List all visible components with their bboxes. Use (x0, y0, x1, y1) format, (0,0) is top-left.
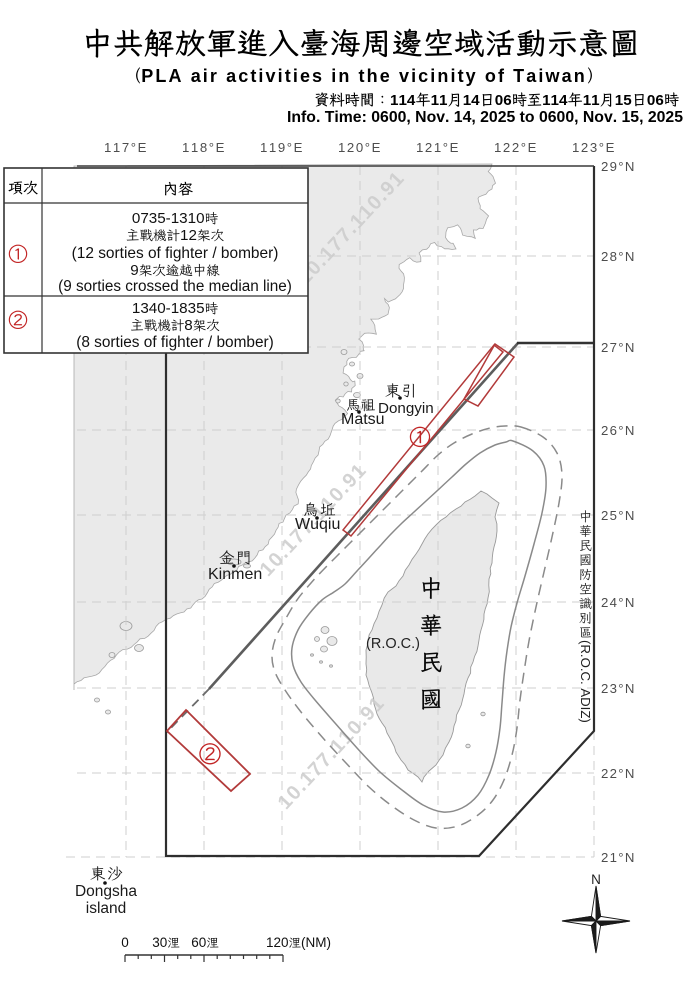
svg-text:11: 11 (583, 92, 600, 109)
svg-text:22°N: 22°N (601, 766, 636, 781)
svg-text:Kinmen: Kinmen (208, 566, 262, 583)
svg-text:27°N: 27°N (601, 340, 636, 355)
svg-text:8: 8 (184, 317, 192, 334)
svg-text:114: 114 (542, 92, 568, 109)
svg-text:1340-1835: 1340-1835 (132, 300, 205, 317)
svg-text:28°N: 28°N (601, 249, 636, 264)
svg-text:island: island (86, 900, 127, 917)
svg-text:119°E: 119°E (260, 140, 304, 155)
svg-text:Dongyin: Dongyin (378, 400, 434, 417)
svg-text:120: 120 (266, 935, 289, 950)
svg-text:21°N: 21°N (601, 850, 636, 865)
svg-text:26°N: 26°N (601, 423, 636, 438)
svg-text:25°N: 25°N (601, 508, 636, 523)
svg-text:(9 sorties crossed the median: (9 sorties crossed the median line) (58, 278, 292, 295)
svg-text:N: N (591, 872, 601, 887)
svg-text:15: 15 (615, 92, 632, 109)
svg-text:117°E: 117°E (104, 140, 148, 155)
svg-text:Info. Time: 0600, Nov. 14, 202: Info. Time: 0600, Nov. 14, 2025 to 0600,… (287, 109, 683, 126)
svg-text:9: 9 (130, 262, 138, 279)
svg-text:118°E: 118°E (182, 140, 226, 155)
svg-text:120°E: 120°E (338, 140, 382, 155)
svg-text:(12 sorties of fighter / bombe: (12 sorties of fighter / bomber) (72, 245, 279, 262)
svg-text:29°N: 29°N (601, 159, 636, 174)
svg-text:0735-1310: 0735-1310 (132, 210, 205, 227)
svg-text:122°E: 122°E (494, 140, 538, 155)
svg-text:(R.O.C.): (R.O.C.) (366, 636, 420, 652)
svg-text:(NM): (NM) (301, 935, 331, 950)
svg-text:24°N: 24°N (601, 595, 636, 610)
svg-text:(R.O.C. ADIZ): (R.O.C. ADIZ) (578, 640, 593, 723)
svg-text:(8 sorties of fighter / bomber: (8 sorties of fighter / bomber) (76, 334, 274, 351)
svg-text:60: 60 (191, 935, 206, 950)
svg-text:06: 06 (647, 92, 664, 109)
svg-text:PLA air activities in the vici: PLA air activities in the vicinity of Ta… (141, 66, 587, 86)
svg-text:121°E: 121°E (416, 140, 460, 155)
svg-text:23°N: 23°N (601, 681, 636, 696)
svg-text:12: 12 (180, 227, 197, 244)
svg-text:14: 14 (463, 92, 480, 109)
svg-text:0: 0 (121, 935, 129, 950)
svg-text:06: 06 (495, 92, 512, 109)
svg-text:Dongsha: Dongsha (75, 883, 137, 900)
svg-text:123°E: 123°E (572, 140, 616, 155)
svg-text:11: 11 (431, 92, 448, 109)
svg-text:30: 30 (152, 935, 167, 950)
svg-text:114: 114 (390, 92, 416, 109)
svg-text:Matsu: Matsu (341, 411, 385, 428)
